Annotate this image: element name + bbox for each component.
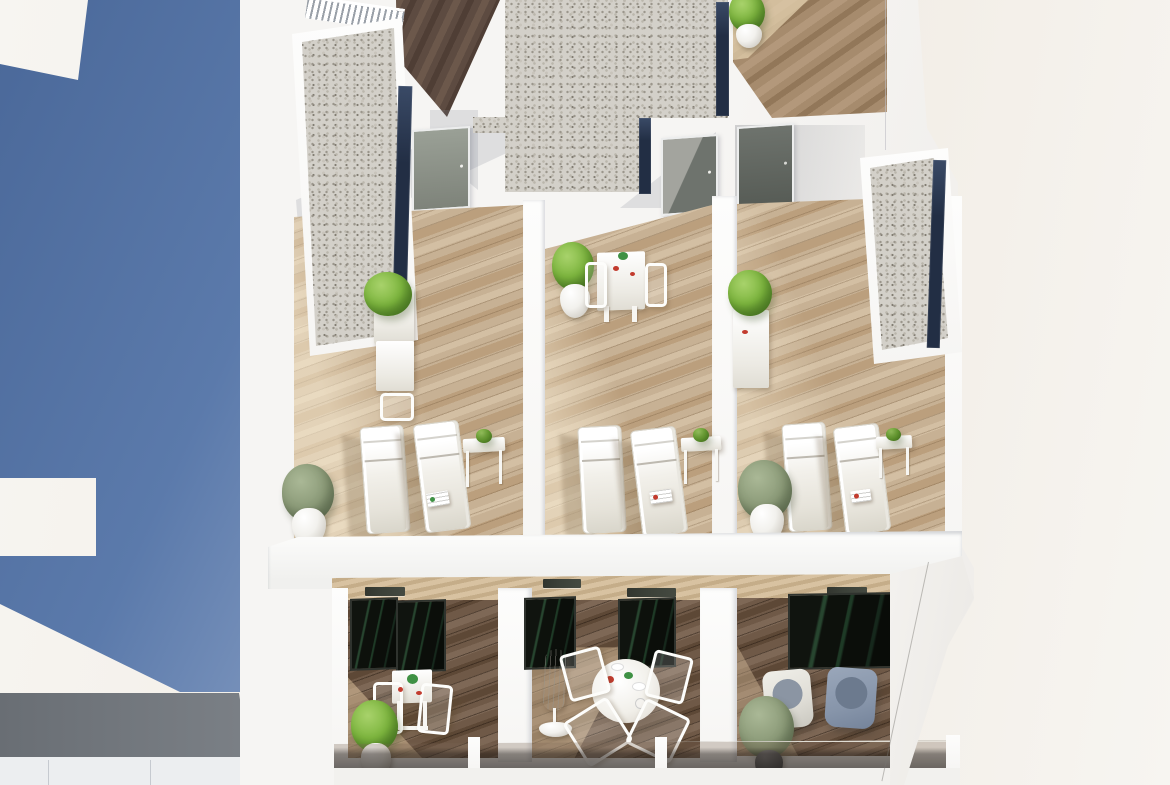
- red-item: [630, 272, 635, 276]
- table-plant: [407, 674, 418, 684]
- architectural-render: [0, 0, 1170, 785]
- balcony-divider: [700, 588, 737, 762]
- terrace-divider-wall: [523, 200, 545, 560]
- chair: [645, 263, 667, 307]
- entry-door-middle: [661, 134, 718, 216]
- red-item: [398, 687, 403, 692]
- green-item: [624, 672, 633, 679]
- plate: [612, 664, 623, 670]
- magazine-accent: [854, 493, 860, 499]
- plate: [633, 683, 645, 690]
- door-handle: [784, 161, 787, 164]
- planter-shrub: [728, 270, 772, 316]
- ceiling-vent: [627, 588, 676, 597]
- door-handle: [460, 164, 463, 167]
- fold-line: [637, 458, 677, 465]
- planter-shrub: [364, 272, 412, 316]
- red-item: [416, 691, 422, 695]
- solar-edge-strip: [716, 2, 729, 116]
- balcony-pier: [332, 588, 348, 762]
- ground-fascia: [0, 757, 252, 785]
- balcony-glass-door: [788, 592, 892, 670]
- table-leg: [715, 449, 718, 481]
- balustrade-end-post: [946, 735, 960, 771]
- table-leg: [879, 448, 882, 478]
- door-handle: [708, 170, 711, 173]
- table-leg: [684, 450, 687, 484]
- table-leg: [906, 447, 909, 475]
- solar-edge-strip: [639, 118, 651, 194]
- fascia-seam: [150, 760, 151, 785]
- mini-plant: [476, 429, 492, 443]
- table-leg: [632, 306, 637, 322]
- table-leg: [466, 451, 469, 487]
- chair: [416, 682, 453, 735]
- mini-plant: [693, 428, 709, 442]
- fold-line: [365, 457, 403, 462]
- fold-line: [837, 437, 877, 444]
- side-table: [681, 437, 723, 489]
- table-leg: [499, 450, 502, 484]
- lounge-armchair: [824, 666, 878, 729]
- table-plant: [618, 252, 628, 260]
- ceiling-vent: [365, 587, 405, 596]
- fold-line: [417, 434, 457, 441]
- balcony-fascia: [334, 768, 960, 785]
- planter-stand: [733, 310, 769, 388]
- balcony-glass-door: [396, 599, 446, 673]
- table-leg: [604, 306, 609, 322]
- fold-line: [840, 456, 880, 463]
- stool: [380, 393, 414, 421]
- entry-door-left: [412, 126, 470, 212]
- side-table: [876, 436, 914, 482]
- red-item: [613, 266, 619, 271]
- fascia-seam: [48, 760, 49, 785]
- fold-line: [420, 453, 460, 460]
- fold-line: [634, 439, 674, 446]
- ceiling-vent: [543, 579, 581, 588]
- balustrade-post: [468, 737, 480, 771]
- side-table: [463, 438, 507, 492]
- mini-plant: [886, 428, 901, 441]
- magazine-accent: [430, 497, 436, 503]
- balcony-glass-door: [350, 597, 398, 671]
- parapet-edge-shade: [885, 0, 886, 150]
- red-item: [742, 330, 748, 334]
- magazine-accent: [653, 494, 659, 500]
- armchair-cushion: [834, 676, 868, 710]
- balustrade-post: [655, 737, 667, 771]
- bistro-table: [376, 341, 414, 391]
- entry-door-right: [737, 123, 794, 211]
- chair: [585, 262, 607, 308]
